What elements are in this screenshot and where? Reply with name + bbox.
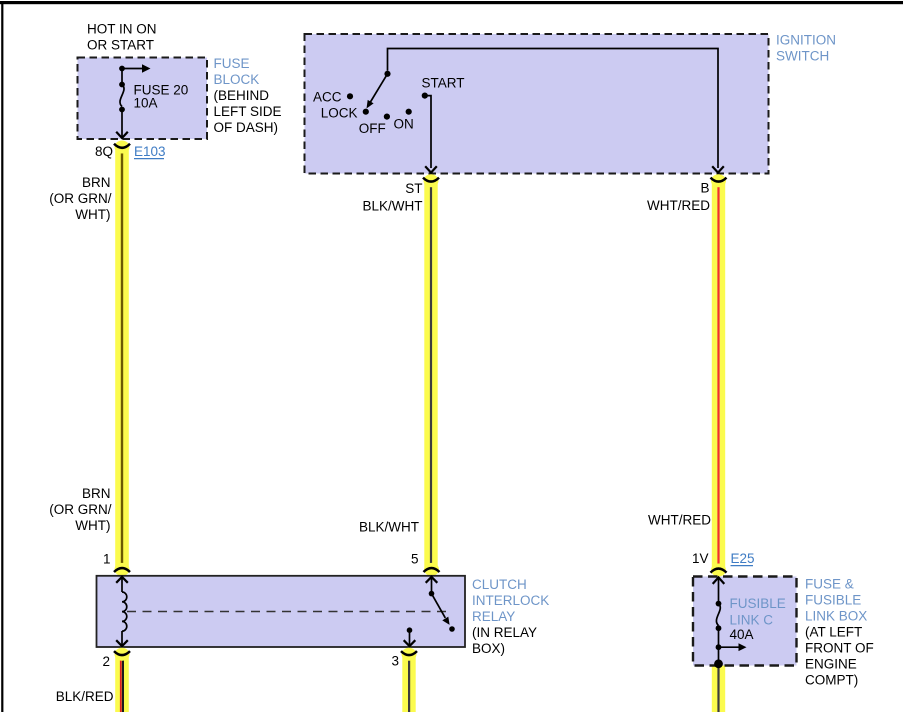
svg-text:COMPT): COMPT) bbox=[805, 673, 858, 688]
svg-text:WHT): WHT) bbox=[75, 518, 110, 533]
svg-text:OR START: OR START bbox=[87, 38, 154, 53]
svg-text:10A: 10A bbox=[134, 96, 158, 111]
svg-text:(OR GRN/: (OR GRN/ bbox=[49, 191, 111, 206]
svg-text:BRN: BRN bbox=[82, 486, 111, 501]
svg-text:WHT): WHT) bbox=[75, 207, 110, 222]
svg-text:BLK/WHT: BLK/WHT bbox=[362, 198, 422, 213]
svg-text:(AT LEFT: (AT LEFT bbox=[805, 625, 862, 640]
svg-text:40A: 40A bbox=[730, 627, 754, 642]
svg-text:FRONT OF: FRONT OF bbox=[805, 641, 874, 656]
svg-text:ENGINE: ENGINE bbox=[805, 657, 857, 672]
svg-text:OFF: OFF bbox=[359, 121, 386, 136]
svg-text:BOX): BOX) bbox=[472, 641, 505, 656]
svg-text:LINK C: LINK C bbox=[730, 613, 774, 628]
svg-text:INTERLOCK: INTERLOCK bbox=[472, 593, 549, 608]
svg-text:ACC: ACC bbox=[313, 90, 342, 105]
svg-text:FUSE: FUSE bbox=[214, 56, 250, 71]
svg-text:8Q: 8Q bbox=[95, 144, 113, 159]
svg-text:BLOCK: BLOCK bbox=[214, 72, 260, 87]
svg-text:HOT IN ON: HOT IN ON bbox=[87, 22, 157, 37]
svg-text:WHT/RED: WHT/RED bbox=[648, 513, 711, 528]
svg-text:LOCK: LOCK bbox=[321, 105, 358, 120]
svg-text:1V: 1V bbox=[692, 551, 709, 566]
svg-text:FUSIBLE: FUSIBLE bbox=[805, 593, 861, 608]
svg-text:IGNITION: IGNITION bbox=[776, 32, 836, 47]
svg-text:E103: E103 bbox=[134, 144, 166, 159]
svg-text:ST: ST bbox=[405, 181, 422, 196]
svg-text:E25: E25 bbox=[731, 551, 755, 566]
svg-text:5: 5 bbox=[411, 552, 419, 567]
svg-text:FUSIBLE: FUSIBLE bbox=[730, 596, 786, 611]
svg-text:START: START bbox=[422, 75, 465, 90]
svg-text:(IN RELAY: (IN RELAY bbox=[472, 625, 537, 640]
svg-text:B: B bbox=[700, 180, 709, 195]
svg-text:BLK/WHT: BLK/WHT bbox=[359, 520, 419, 535]
svg-text:RELAY: RELAY bbox=[472, 609, 515, 624]
svg-text:BRN: BRN bbox=[82, 175, 111, 190]
svg-text:1: 1 bbox=[103, 552, 111, 567]
svg-text:2: 2 bbox=[102, 654, 110, 669]
svg-text:FUSE &: FUSE & bbox=[805, 577, 854, 592]
svg-text:WHT/RED: WHT/RED bbox=[647, 198, 710, 213]
svg-text:(BEHIND: (BEHIND bbox=[214, 88, 270, 103]
svg-text:SWITCH: SWITCH bbox=[776, 48, 829, 63]
svg-text:LINK BOX: LINK BOX bbox=[805, 609, 867, 624]
svg-text:3: 3 bbox=[391, 654, 399, 669]
svg-text:(OR GRN/: (OR GRN/ bbox=[49, 502, 111, 517]
svg-text:BLK/RED: BLK/RED bbox=[56, 689, 114, 704]
svg-text:CLUTCH: CLUTCH bbox=[472, 577, 527, 592]
svg-text:ON: ON bbox=[394, 116, 414, 131]
svg-text:LEFT SIDE: LEFT SIDE bbox=[214, 104, 282, 119]
svg-text:OF DASH): OF DASH) bbox=[214, 120, 279, 135]
